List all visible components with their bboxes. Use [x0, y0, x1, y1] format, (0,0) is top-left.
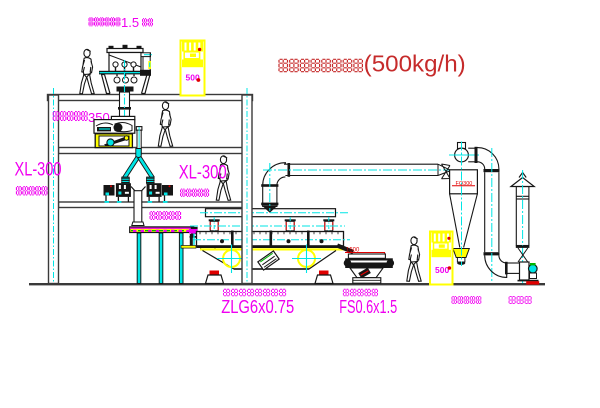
svg-text:ZLG6x0.75: ZLG6x0.75: [221, 297, 294, 317]
svg-text:500: 500: [435, 265, 449, 275]
svg-text:FQ300: FQ300: [456, 181, 473, 187]
svg-text:XL-300: XL-300: [15, 160, 62, 181]
svg-text:1.5: 1.5: [121, 15, 139, 30]
svg-text:(500kg/h): (500kg/h): [364, 51, 466, 77]
svg-text:XL-300: XL-300: [179, 163, 227, 184]
svg-text:1500: 1500: [346, 248, 360, 254]
svg-text:FS0.6x1.5: FS0.6x1.5: [339, 297, 397, 317]
